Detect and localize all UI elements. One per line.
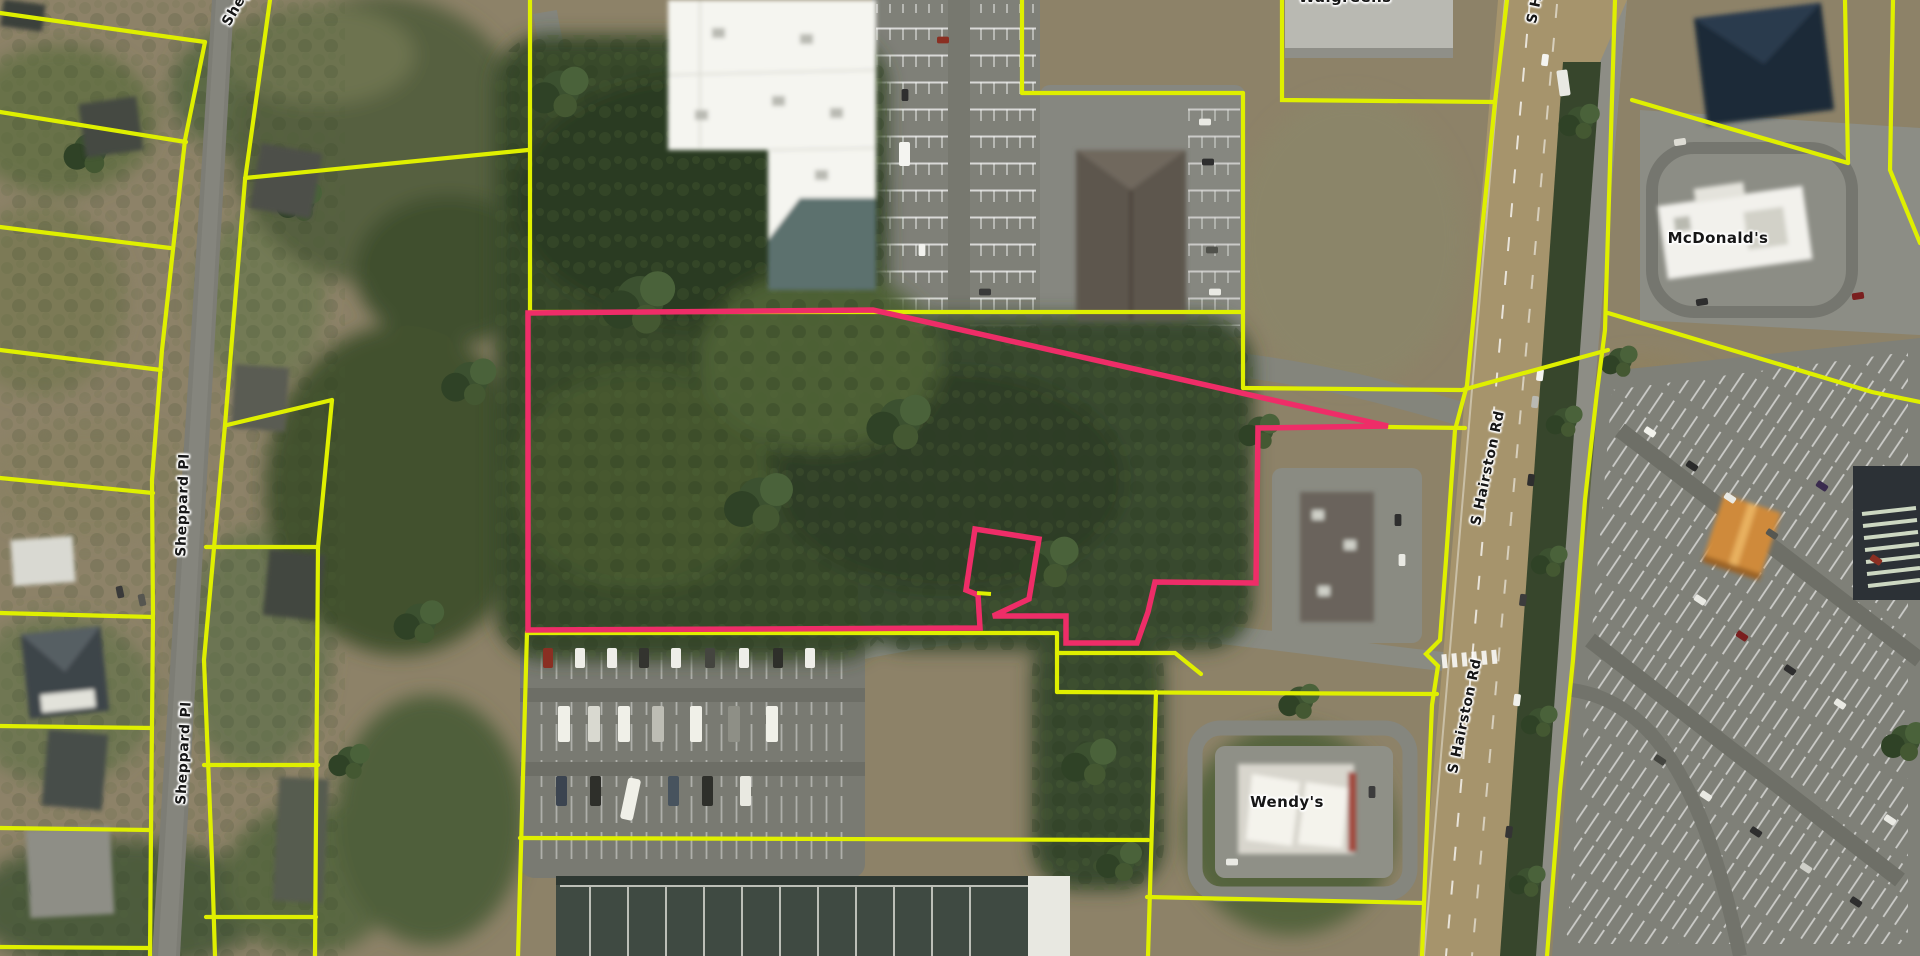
wendys-building	[1238, 764, 1356, 854]
restaurant-building	[1076, 150, 1186, 320]
navy-roof-building	[1694, 3, 1834, 126]
office-building	[1300, 492, 1374, 622]
parcel-tick	[977, 593, 991, 594]
southeast-parking-lot	[1552, 338, 1920, 956]
school-parking-lot	[520, 636, 865, 878]
store-parking-lot	[872, 0, 1040, 332]
map-canvas[interactable]: Sheppard Pl Sheppard Pl Sheppard Pl S Ha…	[0, 0, 1920, 956]
walgreens-building	[1285, 0, 1453, 58]
garden-center-structure	[1853, 466, 1920, 600]
aerial-basemap	[0, 0, 1920, 956]
school-building	[556, 876, 1070, 956]
